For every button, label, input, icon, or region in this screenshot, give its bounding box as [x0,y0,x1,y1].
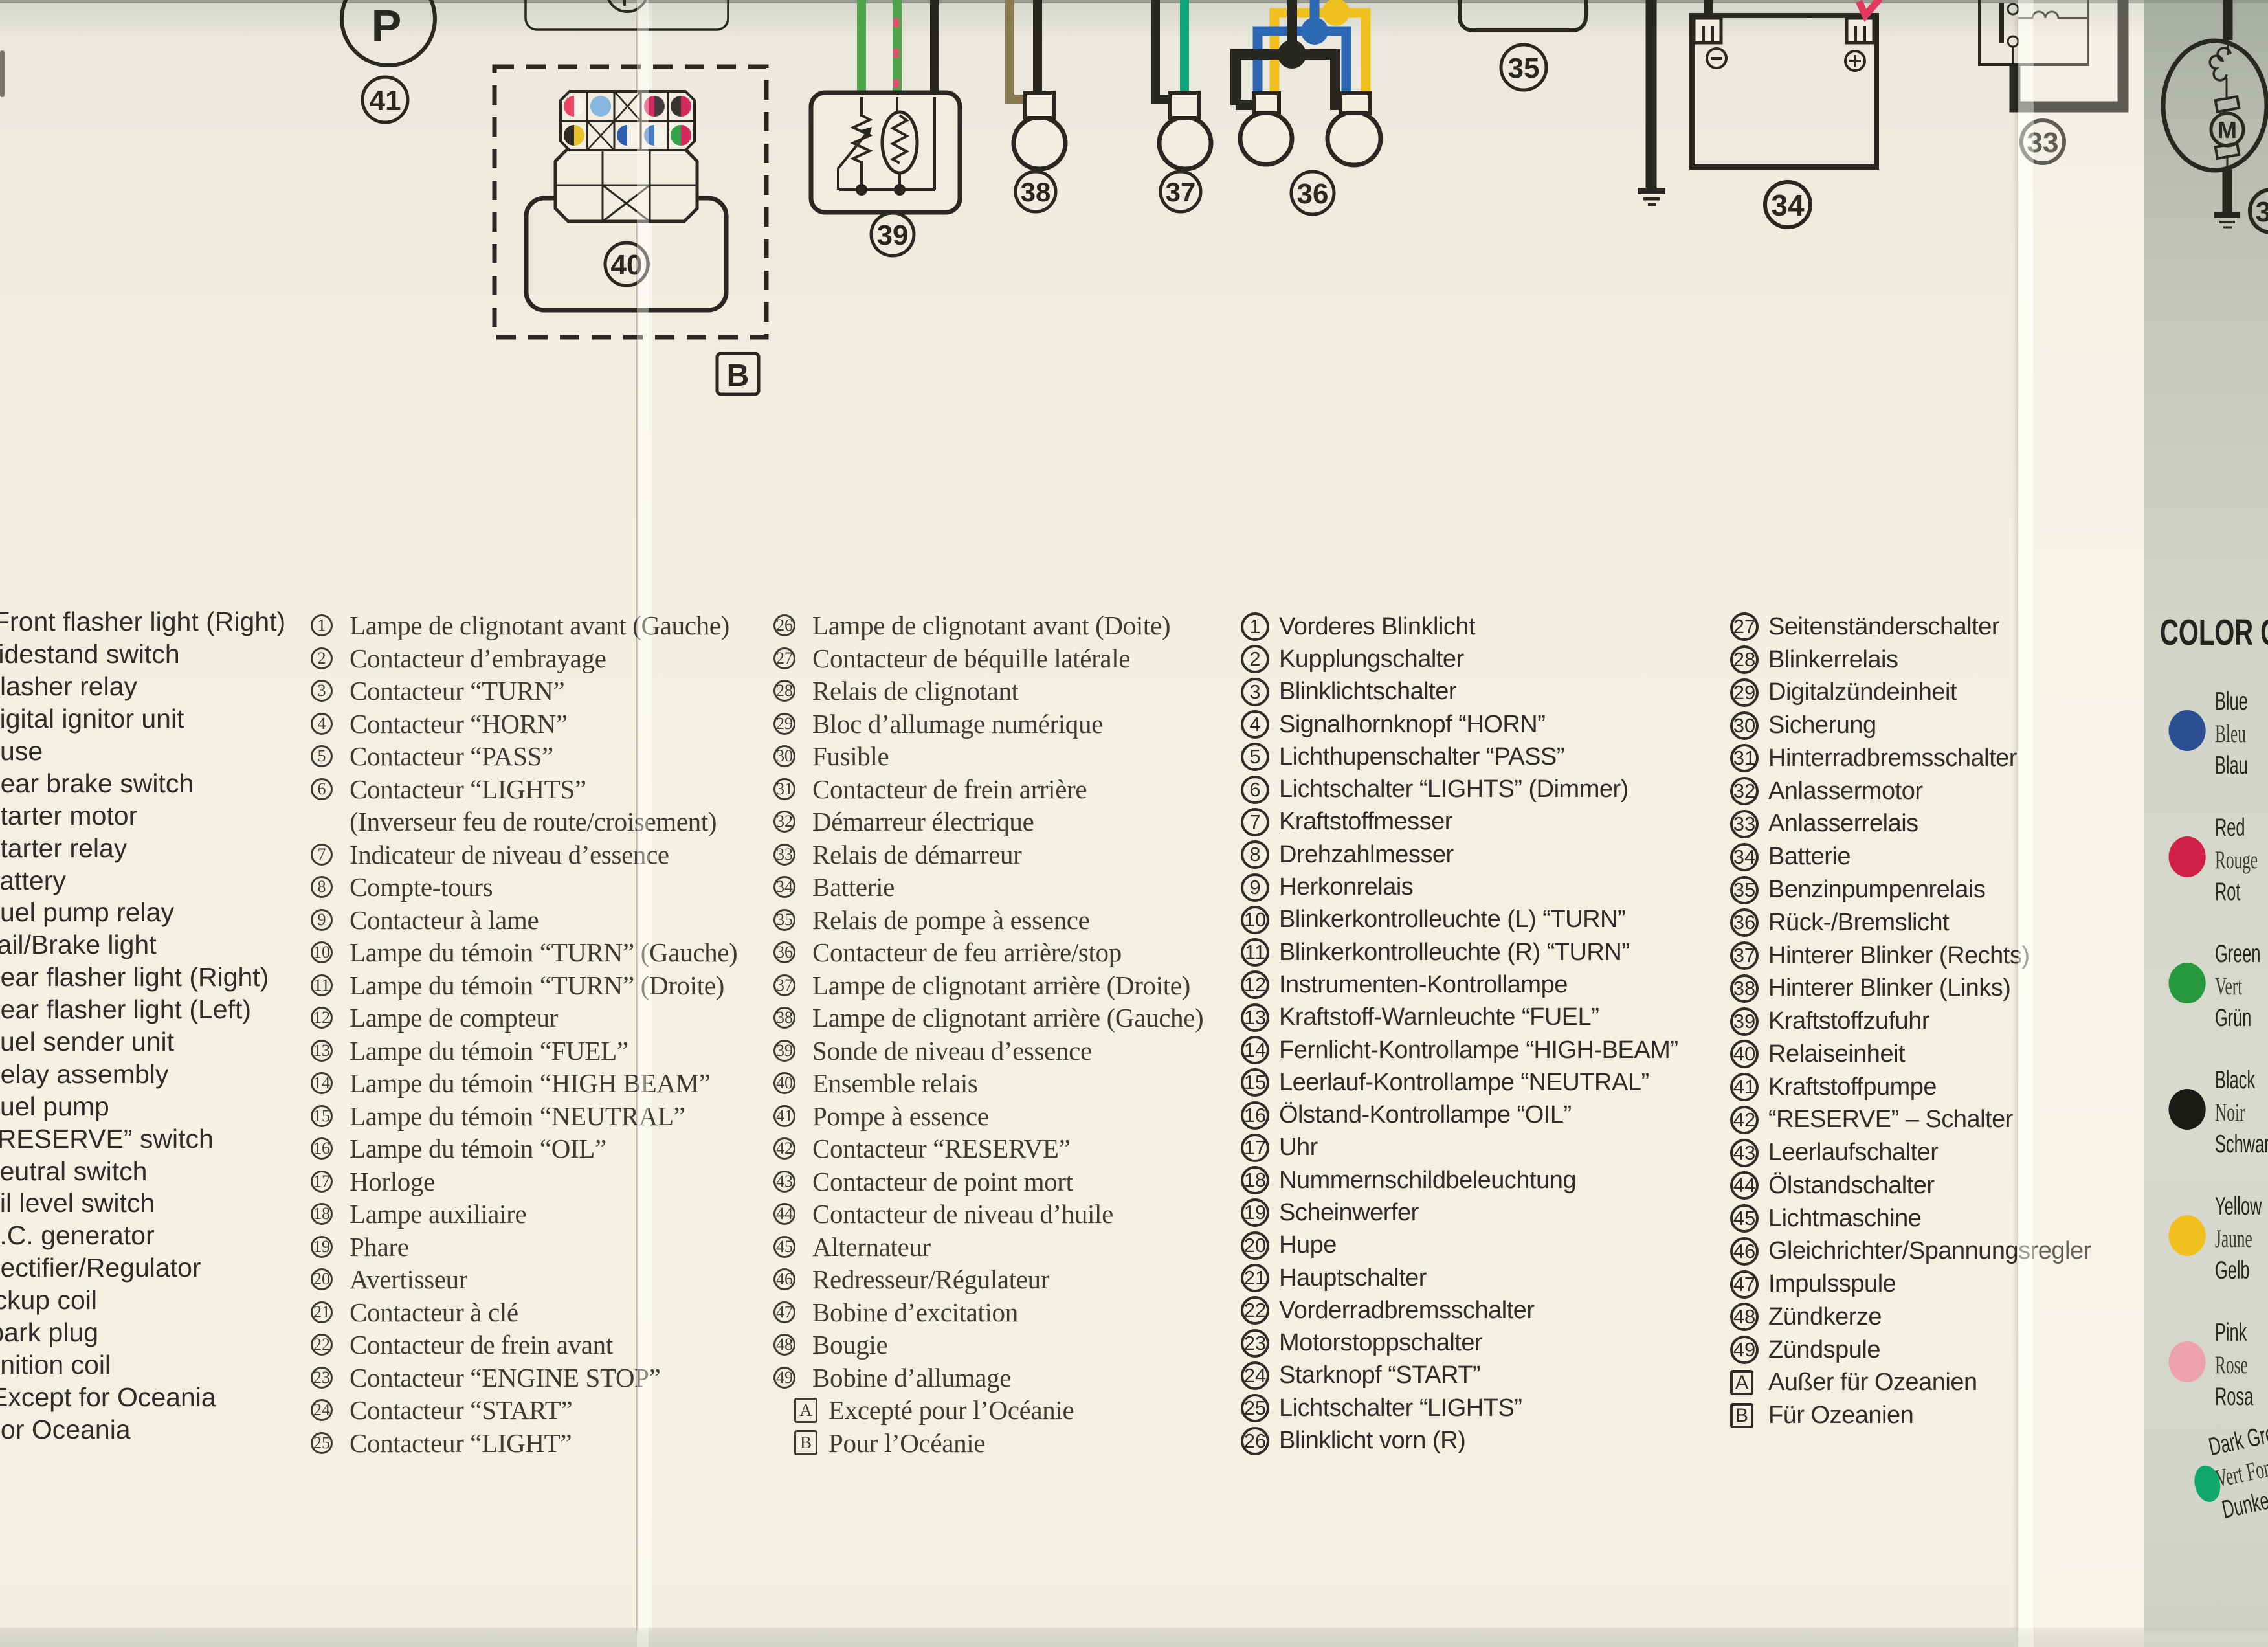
svg-text:P: P [372,1,402,51]
svg-text:M: M [2218,117,2237,143]
svg-text:39: 39 [877,219,909,251]
svg-text:B: B [727,359,750,393]
svg-text:36: 36 [1297,178,1329,210]
svg-text:32: 32 [2256,196,2268,228]
svg-text:35: 35 [1508,52,1540,84]
svg-text:41: 41 [370,85,401,117]
svg-text:34: 34 [1771,188,1805,222]
svg-text:37: 37 [1166,177,1196,207]
svg-text:38: 38 [1021,177,1051,207]
